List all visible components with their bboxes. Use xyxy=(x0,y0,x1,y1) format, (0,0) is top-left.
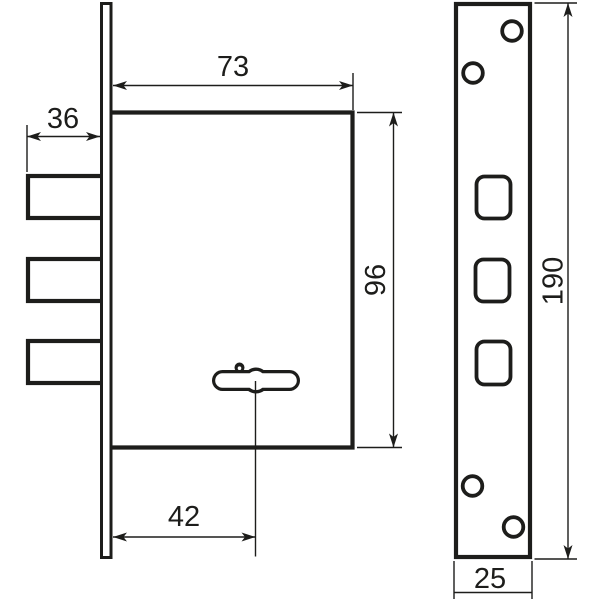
lock-dimension-drawing: 73 36 96 42 xyxy=(0,0,600,600)
dimension-bolt-length: 36 xyxy=(27,103,100,172)
side-view: 73 36 96 42 xyxy=(27,4,402,558)
dimension-faceplate-width-label: 25 xyxy=(474,563,506,595)
dimension-bolt-length-label: 36 xyxy=(47,103,79,135)
screw-hole-bottom-left xyxy=(463,476,483,496)
drawing-svg: 73 36 96 42 xyxy=(0,0,600,600)
faceplate-edge-strip xyxy=(102,4,112,558)
bolt-opening-middle xyxy=(476,260,510,302)
dimension-faceplate-height-label: 190 xyxy=(538,257,570,305)
screw-hole-top-right xyxy=(502,21,522,41)
bolt-opening-top xyxy=(477,177,511,219)
dimension-case-height: 96 xyxy=(357,113,402,448)
faceplate-front-view: 190 25 xyxy=(454,3,577,599)
deadbolt-middle xyxy=(28,259,104,301)
deadbolt-top xyxy=(28,176,104,218)
dimension-case-width-label: 73 xyxy=(217,51,249,83)
dimension-case-width: 73 xyxy=(113,51,353,110)
dimension-keyhole-offset-label: 42 xyxy=(168,501,200,533)
dimension-faceplate-height: 190 xyxy=(535,3,578,559)
dimension-case-height-label: 96 xyxy=(360,264,392,296)
screw-hole-bottom-right xyxy=(504,517,524,537)
screw-hole-top-left xyxy=(463,63,483,83)
dimension-faceplate-width: 25 xyxy=(454,561,532,599)
lock-case-outline xyxy=(112,113,353,448)
deadbolt-bottom xyxy=(28,341,104,383)
dimension-keyhole-offset: 42 xyxy=(113,501,256,542)
bolt-opening-bottom xyxy=(477,342,511,385)
